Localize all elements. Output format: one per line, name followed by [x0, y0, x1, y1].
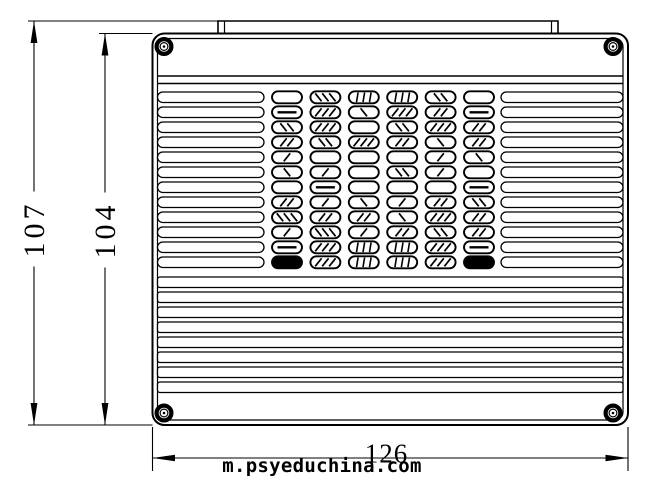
dimension-label-body-height: 104: [91, 193, 121, 268]
dimension-label-overall-height: 107: [20, 192, 50, 267]
watermark-text: m.psyeduchina.com: [222, 455, 422, 477]
technical-drawing-canvas: 107 104 126 m.psyeduchina.com: [0, 0, 655, 484]
